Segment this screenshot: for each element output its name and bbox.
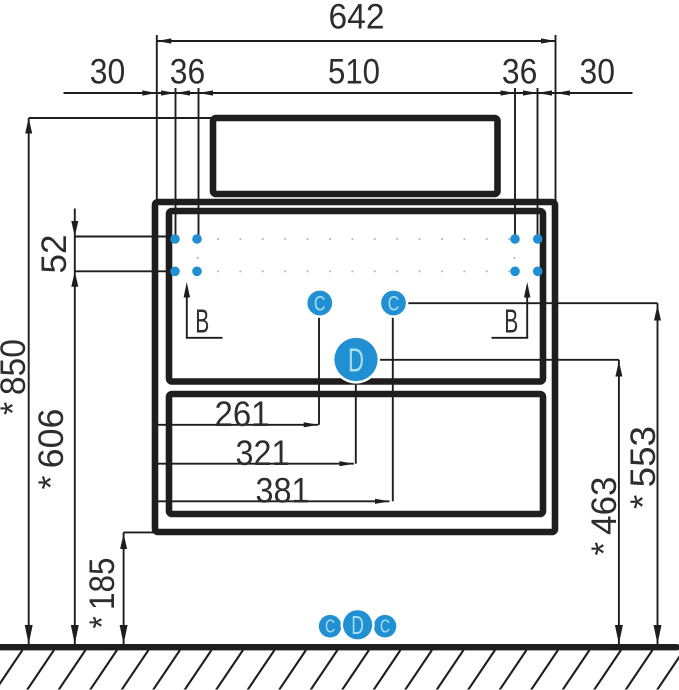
svg-text:* 553: * 553 [624,426,663,509]
svg-text:D: D [348,342,364,379]
svg-text:B: B [195,303,209,340]
svg-text:30: 30 [90,53,126,92]
svg-text:C: C [314,293,326,316]
svg-text:52: 52 [35,235,74,274]
svg-text:* 606: * 606 [32,409,71,490]
svg-text:* 850: * 850 [0,339,33,415]
svg-text:510: 510 [328,53,380,92]
svg-text:261: 261 [215,395,270,434]
svg-text:D: D [351,610,364,640]
svg-text:36: 36 [502,53,538,92]
svg-text:C: C [325,617,335,637]
svg-text:381: 381 [256,472,310,511]
svg-text:* 185: * 185 [83,558,122,629]
svg-text:36: 36 [170,53,206,92]
svg-text:C: C [380,617,390,637]
svg-text:C: C [388,293,400,316]
svg-text:30: 30 [580,53,616,92]
svg-text:B: B [504,303,518,340]
svg-text:321: 321 [236,434,290,473]
svg-text:* 463: * 463 [585,477,624,556]
svg-text:642: 642 [329,0,385,37]
